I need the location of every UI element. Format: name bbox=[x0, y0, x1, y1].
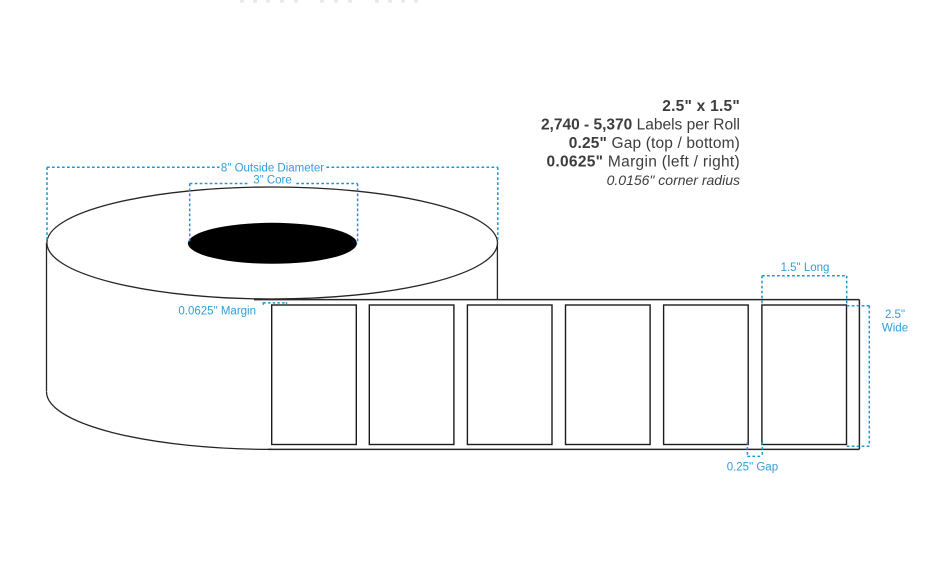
svg-text:Wide: Wide bbox=[882, 323, 908, 335]
svg-text:0.0625" Margin: 0.0625" Margin bbox=[178, 306, 256, 318]
svg-text:0.0156" corner radius: 0.0156" corner radius bbox=[607, 172, 740, 188]
svg-text:2.5" x 1.5": 2.5" x 1.5" bbox=[662, 98, 740, 115]
svg-text:0.25" Gap: 0.25" Gap bbox=[727, 461, 778, 473]
svg-text:3" Core: 3" Core bbox=[253, 175, 292, 187]
svg-text:1.5" Long: 1.5" Long bbox=[781, 262, 830, 274]
svg-text:0.25" Gap (top / bottom): 0.25" Gap (top / bottom) bbox=[569, 135, 740, 152]
svg-text:2,740 - 5,370 Labels per Roll: 2,740 - 5,370 Labels per Roll bbox=[541, 116, 740, 133]
svg-text:0.0625" Margin (left / right): 0.0625" Margin (left / right) bbox=[546, 153, 740, 170]
svg-text:2.5": 2.5" bbox=[885, 309, 905, 321]
svg-text:8" Outside Diameter: 8" Outside Diameter bbox=[221, 162, 324, 174]
